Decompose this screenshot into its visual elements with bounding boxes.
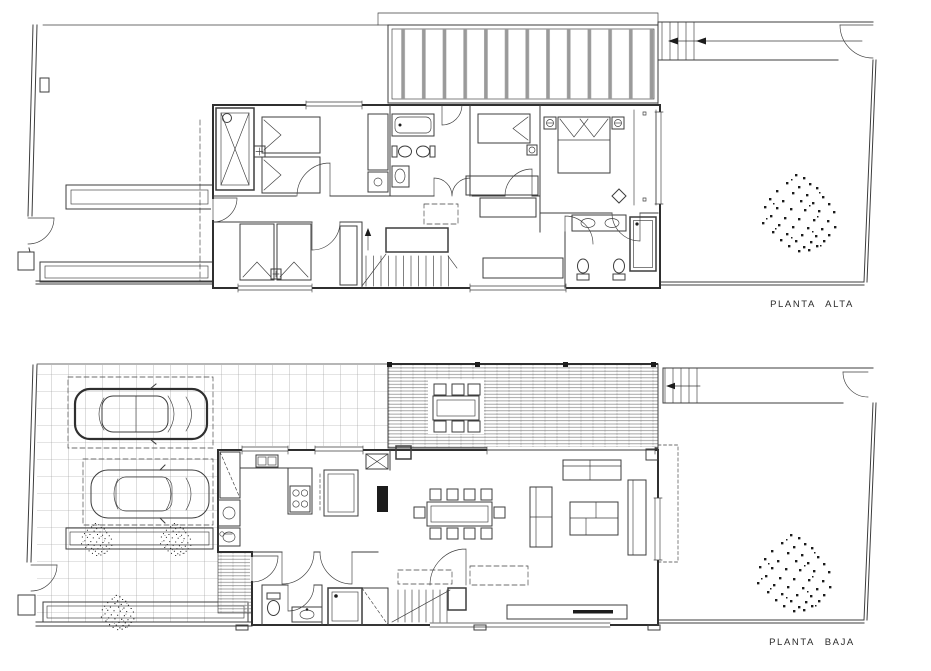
plan-canvas: PLANTA ALTA [0, 0, 931, 671]
bathroom-1 [392, 114, 435, 187]
bench-icon [628, 480, 646, 555]
bidet-icon [613, 259, 625, 280]
wardrobe-column-2 [340, 226, 357, 285]
kitchen [218, 450, 390, 546]
upper-windows [238, 101, 663, 292]
laundry-sink-icon [218, 528, 240, 546]
bathtub-icon [392, 114, 434, 136]
floor-plan-sheet: PLANTA ALTA [0, 0, 931, 671]
sofa-icon [530, 487, 552, 547]
roof-walkway [658, 22, 873, 60]
lower-building-outline [218, 450, 658, 625]
bathroom-2 [572, 215, 656, 280]
garden [658, 403, 876, 623]
under-stair-storage [362, 588, 388, 625]
washbasin-icon [292, 607, 322, 622]
toilet-icon [392, 146, 412, 157]
rear-walkway [663, 368, 873, 403]
single-bed-icon [478, 114, 530, 143]
elevator-shaft [216, 108, 254, 190]
tiled-driveway [37, 365, 388, 622]
upper-terrace [658, 60, 876, 285]
double-washbasin-icon [572, 215, 626, 231]
wardrobe-row-2 [480, 198, 536, 217]
fridge-icon [366, 454, 388, 469]
upper-floor-plan: PLANTA ALTA [18, 13, 876, 310]
powder-room [267, 593, 322, 622]
twin-beds-bedroom2 [240, 224, 311, 280]
master-bedroom [544, 110, 656, 205]
wardrobe-row-3 [483, 258, 563, 278]
toilet-icon [267, 593, 280, 616]
lower-windows [236, 446, 662, 630]
wardrobe-column-1 [368, 114, 388, 192]
lower-floor-plan: PLANTA BAJA [18, 362, 876, 648]
tv-console [507, 605, 627, 619]
pouf-icon [612, 189, 626, 203]
cooktop-icon [290, 486, 310, 512]
wood-deck [387, 362, 658, 448]
washbasin-icon [392, 166, 409, 187]
kitchen-island [320, 470, 358, 516]
upper-staircase [362, 228, 457, 286]
terrace-tree [762, 174, 836, 252]
lower-staircase [392, 570, 466, 622]
garden-tree [757, 534, 831, 612]
upper-plan-label: PLANTA ALTA [770, 299, 854, 310]
toilet-icon [577, 259, 589, 280]
upper-patio-planter-2 [40, 262, 213, 282]
shower-icon [328, 588, 362, 625]
outdoor-dining-table [428, 380, 484, 434]
bidet-icon [417, 146, 436, 157]
washer-icon [218, 500, 240, 526]
twin-beds-bedroom1 [254, 117, 320, 193]
wardrobe-row-1 [466, 176, 538, 195]
skylight-dashed [424, 204, 458, 224]
living-room [507, 460, 646, 619]
shower-icon [630, 217, 656, 271]
dining-table [414, 489, 505, 539]
coffee-table-icon [570, 502, 618, 535]
walkway-door [843, 372, 868, 397]
lower-plan-label: PLANTA BAJA [769, 637, 855, 648]
pergola-slats [388, 25, 658, 103]
double-bed-icon [558, 117, 610, 173]
upper-patio-gate [28, 218, 54, 244]
kitchen-sink-icon [256, 455, 278, 467]
upper-patio-planter-1 [66, 185, 213, 209]
oven-column [377, 486, 388, 512]
entry-steps [218, 552, 252, 613]
walkway-door [840, 25, 873, 58]
sofa-icon [563, 460, 621, 480]
